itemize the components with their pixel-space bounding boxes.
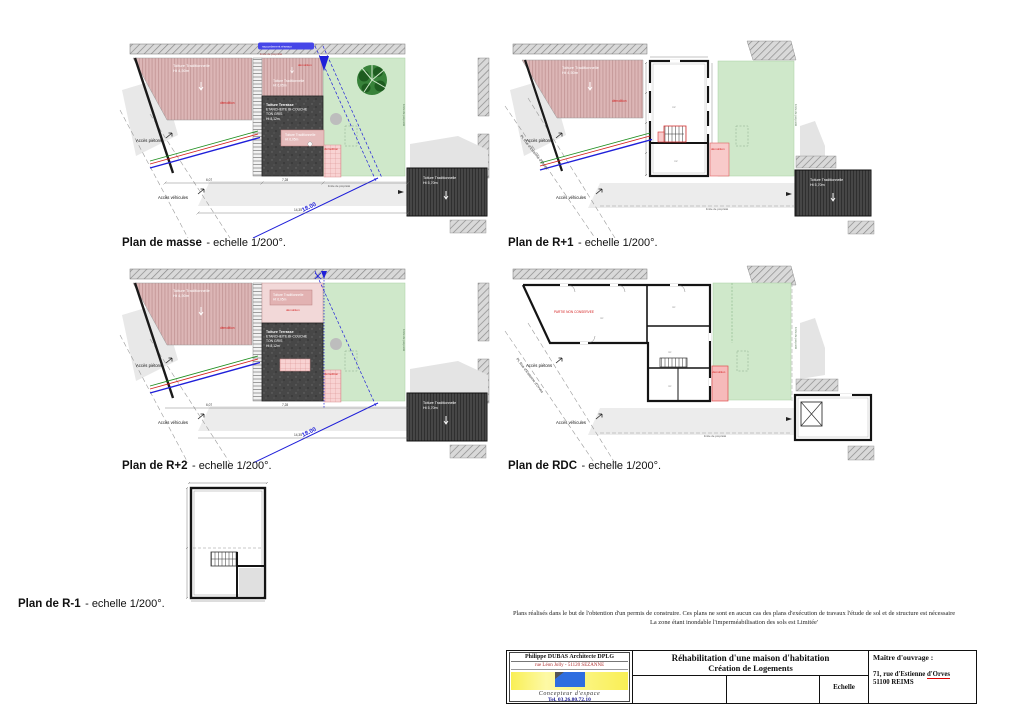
caption-plan-r1: Plan de R+1 - echelle 1/200°. — [508, 233, 658, 251]
rdc-room-area-1: m² — [600, 316, 603, 320]
r1-garage-label: Toiture Traditionnelle — [810, 178, 843, 182]
caption-title: Plan de R-1 — [18, 598, 81, 610]
plan-r1-drawing: Toiture Traditionnelle Ht 4,50m démoliti… — [500, 38, 890, 238]
plan-rm1 — [183, 478, 273, 603]
rdc-room-area-4: m² — [668, 384, 671, 388]
empty-cell-2 — [727, 676, 820, 703]
caption-title: Plan de masse — [122, 237, 202, 249]
caption-title: Plan de R+1 — [508, 237, 574, 249]
masse-pink-roof-second: Toiture Traditionnelle Ht 6,05m démoliti… — [262, 58, 323, 96]
r1-garden — [718, 61, 794, 176]
rm1-building — [191, 488, 265, 598]
architect-logo — [511, 672, 628, 690]
acces-vehicules-label: Accès véhicules — [556, 195, 586, 200]
owner-address-line2: 51100 REIMS — [873, 679, 972, 686]
empty-cell-1 — [633, 676, 727, 703]
project-line1: Réhabilitation d'une maison d'habitation — [633, 653, 868, 663]
masse-terrasse-roof: Toiture Terrasse ETANCHEITE BI-COUCHE TO… — [262, 96, 324, 176]
owner-section: Maître d'ouvrage : 71, rue d'Estienne d'… — [868, 651, 976, 703]
caption-suffix: - echelle 1/200°. — [581, 460, 661, 472]
terrasse-line2: ETANCHEITE BI-COUCHE — [266, 108, 308, 112]
project-title: Réhabilitation d'une maison d'habitation… — [633, 651, 868, 676]
dim-607: 6,07 — [206, 403, 212, 407]
masse-demol-text-1: démolition — [220, 101, 235, 105]
architect-phone: Tel. 03.26.80.72.10 — [511, 697, 628, 703]
plan-rm1-drawing — [183, 478, 273, 603]
disclaimer-line2: La zone étant inondable l'imperméabilisa… — [487, 619, 981, 628]
disclaimer: Plans réalisés dans le but de l'obtentio… — [487, 610, 981, 627]
rdc-building: PARTIE NON CONSERVEE m² m² m² m² — [523, 284, 711, 401]
r2-garage: Toiture Traditionnelle Ht 5,70m — [407, 393, 487, 458]
project-line2: Création de Logements — [633, 663, 868, 673]
owner-label: Maître d'ouvrage : — [873, 653, 972, 662]
r2-demol-text-2: démolition — [286, 308, 300, 312]
plan-r2: Toiture Traditionnelle Ht 4,50m démoliti… — [110, 263, 495, 463]
rdc-demol-text: démolition — [713, 370, 726, 374]
project-section: Réhabilitation d'une maison d'habitation… — [633, 651, 868, 703]
masse-demol-zone: démolition — [324, 145, 341, 177]
masse-demol-text-2: démolition — [298, 63, 312, 67]
title-block: Philippe DUBAS Architecte DPLG rue Léon … — [506, 650, 977, 704]
garage-roof-height: Ht 5,70m — [423, 181, 438, 185]
r1-roof-height: Ht 4,50m — [562, 70, 579, 75]
caption-plan-r2: Plan de R+2 - echelle 1/200°. — [122, 456, 272, 474]
caption-plan-masse: Plan de masse - echelle 1/200°. — [122, 233, 286, 251]
dim-1435: 14,35 — [294, 433, 302, 437]
terrasse-line4: Ht 8,12m — [266, 344, 280, 348]
rdc-limite-right: limite de propriété — [794, 327, 798, 350]
plan-rdc-drawing: PARTIE NON CONSERVEE m² m² m² m² démolit… — [500, 263, 890, 468]
r2-roof-height: Ht 4,50m — [173, 293, 190, 298]
masse-demol-text-3: démolition — [325, 147, 339, 151]
rdc-room-area-3: m² — [668, 350, 671, 354]
r1-demol-strip: démolition — [710, 143, 729, 176]
terrasse-line2: ETANCHEITE BI-COUCHE — [266, 335, 308, 339]
caption-suffix: - echelle 1/200°. — [192, 460, 272, 472]
echelle-cell: Echelle — [820, 676, 868, 703]
acces-pietons-label: Accès piétons — [526, 363, 552, 368]
annexe-label: Toiture Traditionnelle — [285, 133, 316, 137]
architect-address: rue Léon Jolly - 51120 SEZANNE — [511, 662, 628, 670]
r2-annexe-height: Ht 6,05m — [273, 298, 287, 302]
annexe-height: Ht 6,05m — [285, 138, 299, 142]
caption-suffix: - echelle 1/200°. — [206, 237, 286, 249]
r2-ladder-strip — [253, 283, 262, 401]
owner-address-line1: 71, rue d'Estienne d'Orves — [873, 671, 972, 678]
r1-demol-text: démolition — [612, 99, 627, 103]
r1-building: m² m² — [645, 57, 712, 176]
plan-masse-drawing: Toiture Traditionnelle Ht 4,50m démoliti… — [110, 38, 495, 238]
dim-728: 7,28 — [282, 403, 288, 407]
acces-pietons-label: Accès piétons — [526, 138, 552, 143]
acces-vehicules-label: Accès véhicules — [158, 420, 188, 425]
r1-room-area-1: m² — [672, 105, 676, 109]
echelle-label: Echelle — [833, 683, 855, 691]
access-arrow-icon — [556, 358, 562, 363]
dim-728: 7,28 — [282, 178, 288, 182]
logo-blue-square — [555, 672, 585, 687]
rdc-access-labels: Accès piétons Accès véhicules — [526, 358, 602, 425]
title-block-cells: Echelle — [633, 676, 868, 703]
rdc-limite: limite de propriété — [704, 434, 727, 438]
r2-demol-zone: démolition — [324, 370, 341, 402]
acces-pietons-label: Accès piétons — [136, 138, 162, 143]
r2-garage-label: Toiture Traditionnelle — [423, 401, 456, 405]
rdc-demol-box: démolition — [712, 366, 728, 401]
caption-plan-rdc: Plan de RDC - echelle 1/200°. — [508, 456, 661, 474]
acces-pietons-label: Accès piétons — [136, 363, 162, 368]
garage-roof-label: Toiture Traditionnelle — [423, 176, 456, 180]
rdc-room-area-2: m² — [672, 305, 675, 309]
dim-607: 6,07 — [206, 178, 212, 182]
limite-right: limite de propriété — [402, 329, 406, 352]
masse-roof2-height: Ht 6,05m — [273, 84, 287, 88]
architect-stamp: Philippe DUBAS Architecte DPLG rue Léon … — [507, 651, 633, 703]
r2-demol-text-1: démolition — [220, 326, 235, 330]
architect-name: Philippe DUBAS Architecte DPLG — [511, 654, 628, 662]
owner-street: 71, rue d'Estienne — [873, 671, 927, 678]
masse-garage: Toiture Traditionnelle Ht 5,70m — [398, 168, 487, 233]
architect-stamp-frame: Philippe DUBAS Architecte DPLG rue Léon … — [509, 652, 630, 702]
caption-plan-rm1: Plan de R-1 - echelle 1/200°. — [18, 594, 165, 612]
dim-1435: 14,35 — [294, 208, 302, 212]
limite-top: limite de propriété — [260, 52, 283, 56]
caption-suffix: - echelle 1/200°. — [85, 598, 165, 610]
masse-roof2-label: Toiture Traditionnelle — [273, 79, 304, 83]
limite-right: limite de propriété — [402, 104, 406, 127]
plan-r1: Toiture Traditionnelle Ht 4,50m démoliti… — [500, 38, 890, 238]
rdc-red-note: PARTIE NON CONSERVEE — [554, 310, 594, 314]
acces-vehicules-label: Accès véhicules — [556, 420, 586, 425]
r2-demol-text-3: démolition — [325, 372, 339, 376]
r1-limite-right: limite de propriété — [794, 104, 798, 127]
r2-annexe-label: Toiture Traditionnelle — [273, 293, 304, 297]
r2-terrasse-roof: Toiture Terrasse ETANCHEITE BI-COUCHE TO… — [262, 323, 323, 401]
network-badge: raccordement réseaux — [262, 45, 292, 49]
plan-rdc: PARTIE NON CONSERVEE m² m² m² m² démolit… — [500, 263, 890, 468]
acces-vehicules-label: Accès véhicules — [158, 195, 188, 200]
r1-limite: limite de propriété — [706, 207, 729, 211]
terrasse-line3: TON GRIS — [266, 112, 283, 116]
limite-bottom: limite de propriété — [328, 184, 351, 188]
plan-masse: Toiture Traditionnelle Ht 4,50m démoliti… — [110, 38, 495, 238]
r1-demol-strip-text: démolition — [711, 147, 725, 151]
r2-garage-height: Ht 5,70m — [423, 406, 438, 410]
caption-suffix: - echelle 1/200°. — [578, 237, 658, 249]
r1-garage: Toiture Traditionnelle Ht 5,70m — [786, 170, 874, 234]
rdc-garage — [786, 394, 874, 460]
r1-garage-height: Ht 5,70m — [810, 183, 825, 187]
caption-title: Plan de RDC — [508, 460, 577, 472]
terrasse-line1: Toiture Terrasse — [266, 330, 294, 334]
caption-title: Plan de R+2 — [122, 460, 188, 472]
terrasse-line3: TON GRIS — [266, 339, 283, 343]
terrasse-line1: Toiture Terrasse — [266, 103, 294, 107]
disclaimer-line1: Plans réalisés dans le but de l'obtentio… — [487, 610, 981, 619]
masse-roof-height: Ht 4,50m — [173, 68, 190, 73]
masse-ladder-strip — [253, 58, 262, 176]
plan-r2-drawing: Toiture Traditionnelle Ht 4,50m démoliti… — [110, 263, 495, 463]
owner-street-underlined: d'Orves — [927, 671, 950, 679]
terrasse-line4: Ht 8,12m — [266, 117, 280, 121]
r2-new-roof: Toiture Traditionnelle Ht 6,05m démoliti… — [262, 283, 323, 323]
r1-room-area-2: m² — [674, 159, 678, 163]
